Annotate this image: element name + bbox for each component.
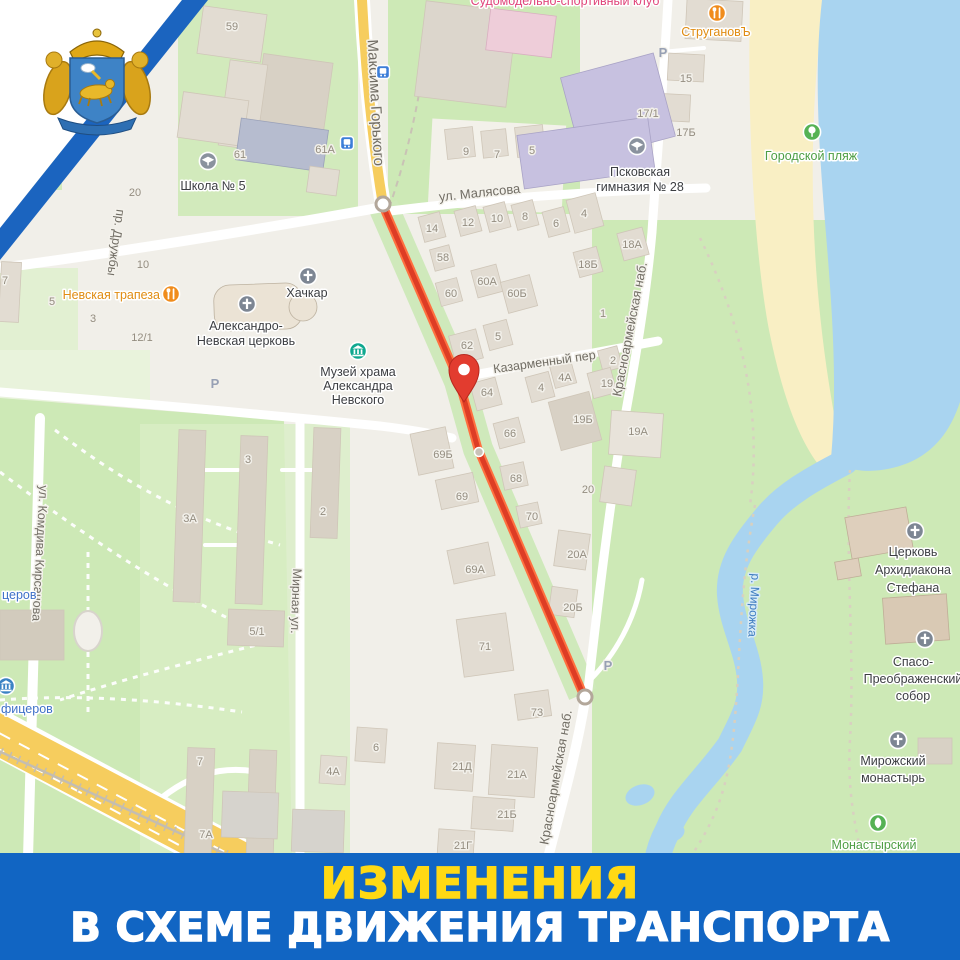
- house-number: 7А: [199, 829, 213, 841]
- place-label: СтругановЪ: [681, 25, 751, 39]
- house-number: 21Д: [452, 761, 472, 773]
- house-number: 4: [538, 382, 544, 394]
- place-label: Хачкар: [286, 286, 327, 300]
- house-number: 60: [445, 288, 457, 300]
- house-number: 18А: [622, 239, 642, 251]
- house-number: 68: [510, 473, 522, 485]
- cross-poi-icon: [906, 522, 923, 539]
- house-number: 2: [610, 355, 616, 367]
- route-endpoint-circle: [578, 690, 592, 704]
- parking-icon: Р: [211, 376, 220, 391]
- place-label: Городской пляж: [765, 149, 858, 163]
- place-label: Монастырский: [832, 838, 917, 852]
- house-number: 2: [320, 506, 326, 518]
- cross-poi-icon: [889, 731, 906, 748]
- house-number: 17Б: [676, 127, 695, 139]
- tram-stop-icon: [341, 137, 354, 150]
- house-number: 20: [582, 484, 594, 496]
- place-label: Судомодельно-спортивный клуб: [471, 0, 660, 8]
- house-number: 17/1: [637, 108, 658, 120]
- house-number: 19Б: [573, 414, 592, 426]
- house-number: 71: [479, 641, 491, 653]
- house-number: 12: [462, 217, 474, 229]
- house-number: 20Б: [563, 602, 582, 614]
- house-number: 9: [463, 146, 469, 158]
- house-number: 66: [504, 428, 516, 440]
- house-number: 20А: [567, 549, 587, 561]
- house-number: 73: [531, 707, 543, 719]
- house-number: 5: [495, 331, 501, 343]
- banner-title: ИЗМЕНЕНИЯ: [0, 859, 960, 909]
- house-number: 6: [553, 218, 559, 230]
- house-number: 21Б: [497, 809, 516, 821]
- route-waypoint-dot: [475, 448, 484, 457]
- house-number: 4А: [326, 766, 340, 778]
- house-number: 8: [522, 211, 528, 223]
- house-number: 4А: [558, 372, 572, 384]
- house-number: 61А: [315, 144, 335, 156]
- street-name-label: Мирная ул.: [288, 568, 304, 634]
- house-number: 69А: [465, 564, 485, 576]
- museum-poi-icon: [349, 342, 366, 359]
- house-number: 3: [90, 313, 96, 325]
- tram-stop-icon: [377, 66, 390, 79]
- announcement-poster: Максима Горькогоул. Малясовапр. Дружбыул…: [0, 0, 960, 960]
- house-number: 70: [526, 511, 538, 523]
- house-number: 69: [456, 491, 468, 503]
- tree-poi-icon: [803, 123, 820, 140]
- house-number: 3А: [183, 513, 197, 525]
- house-number: 62: [461, 340, 473, 352]
- place-label: фицеров: [1, 702, 53, 716]
- place-label: церов: [2, 588, 37, 602]
- house-number: 5: [529, 145, 535, 157]
- school-poi-icon: [628, 137, 645, 154]
- house-number: 6: [373, 742, 379, 754]
- house-number: 7: [197, 756, 203, 768]
- cross-poi-icon: [299, 267, 316, 284]
- house-number: 21Г: [454, 840, 472, 852]
- house-number: 21А: [507, 769, 527, 781]
- parking-icon: Р: [604, 658, 613, 673]
- house-number: 7: [494, 149, 500, 161]
- leaf-poi-icon: [869, 814, 886, 831]
- house-number: 3: [245, 454, 251, 466]
- house-number: 18Б: [578, 259, 597, 271]
- parking-icon: Р: [659, 45, 668, 60]
- house-number: 19: [601, 378, 613, 390]
- house-number: 58: [437, 252, 449, 264]
- museum-poi-icon: [0, 677, 15, 694]
- house-number: 64: [481, 387, 493, 399]
- route-endpoint-circle: [376, 197, 390, 211]
- food-poi-icon: [708, 4, 725, 21]
- house-number: 5/1: [249, 626, 264, 638]
- corner-frame: [0, 0, 260, 300]
- banner-subtitle: В СХЕМЕ ДВИЖЕНИЯ ТРАНСПОРТА: [0, 905, 960, 951]
- house-number: 60Б: [507, 288, 526, 300]
- cross-poi-icon: [916, 630, 933, 647]
- house-number: 19А: [628, 426, 648, 438]
- house-number: 12/1: [131, 332, 152, 344]
- house-number: 69Б: [433, 449, 452, 461]
- house-number: 14: [426, 223, 438, 235]
- place-label: Александро-Невская церковь: [197, 319, 295, 348]
- announcement-banner: ИЗМЕНЕНИЯ В СХЕМЕ ДВИЖЕНИЯ ТРАНСПОРТА: [0, 853, 960, 960]
- house-number: 15: [680, 73, 692, 85]
- house-number: 4: [581, 208, 587, 220]
- house-number: 10: [491, 213, 503, 225]
- house-number: 1: [600, 308, 606, 320]
- house-number: 60А: [477, 276, 497, 288]
